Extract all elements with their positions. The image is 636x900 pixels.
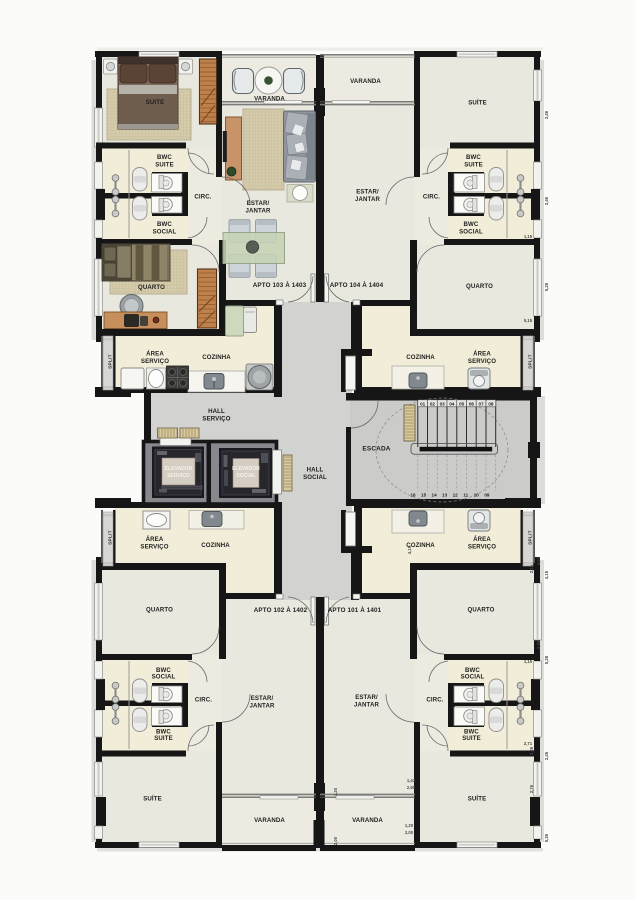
svg-text:ÁREA: ÁREA [146,536,164,543]
svg-text:COZINHA: COZINHA [201,542,230,549]
svg-text:SUÍTE: SUÍTE [468,795,487,803]
svg-text:ÁREA: ÁREA [473,351,491,358]
svg-text:SOCIAL: SOCIAL [303,474,327,481]
svg-text:1,15: 1,15 [524,234,533,239]
svg-text:2,45: 2,45 [529,746,534,755]
svg-text:COZINHA: COZINHA [202,354,231,361]
svg-text:QUARTO: QUARTO [466,283,493,290]
svg-text:SUITE: SUITE [462,735,481,742]
svg-text:2,00: 2,00 [333,836,338,845]
svg-text:2,46: 2,46 [544,110,549,119]
svg-text:ESTAR/: ESTAR/ [247,200,270,207]
svg-text:SUITE: SUITE [464,162,483,169]
svg-text:VARANDA: VARANDA [352,817,383,824]
svg-text:SERVIÇO: SERVIÇO [202,416,230,423]
svg-text:BWC: BWC [464,221,479,228]
svg-text:11: 11 [463,493,468,498]
svg-text:SPLIT: SPLIT [527,354,532,369]
svg-text:ESTAR/: ESTAR/ [356,189,379,196]
svg-text:ELEVADOR: ELEVADOR [232,466,260,472]
svg-text:SERVIÇO: SERVIÇO [167,473,190,479]
svg-text:05: 05 [459,401,465,406]
svg-text:BWC: BWC [157,154,172,161]
svg-text:13: 13 [442,493,448,498]
svg-text:SUÍTE: SUÍTE [143,795,162,803]
svg-text:CIRC.: CIRC. [423,194,440,201]
svg-text:2,00: 2,00 [405,830,414,835]
svg-text:SOCIAL: SOCIAL [461,674,485,681]
svg-text:CIRC.: CIRC. [195,697,212,704]
svg-text:1,43: 1,43 [407,778,416,783]
svg-text:CIRC.: CIRC. [194,194,211,201]
svg-text:ESCADA: ESCADA [362,446,390,453]
svg-text:CIRC.: CIRC. [426,697,443,704]
svg-text:APTO 101 À 1401: APTO 101 À 1401 [328,605,382,614]
svg-text:BWC: BWC [157,221,172,228]
svg-text:QUARTO: QUARTO [467,607,494,614]
svg-text:SOCIAL: SOCIAL [153,229,177,236]
svg-text:SUITE: SUITE [154,735,173,742]
svg-text:2,90: 2,90 [407,785,416,790]
svg-text:04: 04 [449,401,455,406]
svg-text:APTO 103 À 1403: APTO 103 À 1403 [253,280,307,289]
svg-text:QUARTO: QUARTO [146,607,173,614]
svg-text:5,28: 5,28 [544,282,549,291]
svg-text:12: 12 [453,493,459,498]
svg-text:SERVIÇO: SERVIÇO [141,358,169,365]
svg-text:5,28: 5,28 [544,655,549,664]
svg-text:2,71: 2,71 [524,741,533,746]
svg-text:03: 03 [440,401,446,406]
svg-text:08: 08 [488,401,494,406]
svg-text:07: 07 [479,401,485,406]
svg-text:10: 10 [474,493,480,498]
svg-text:2,45: 2,45 [544,751,549,760]
svg-text:SOCIAL: SOCIAL [459,229,483,236]
svg-text:15: 15 [421,493,427,498]
svg-text:VARANDA: VARANDA [254,817,285,824]
svg-text:JANTAR: JANTAR [250,703,275,710]
svg-text:VARANDA: VARANDA [254,96,285,103]
svg-text:SOCIAL: SOCIAL [152,674,176,681]
svg-text:5,15: 5,15 [524,318,533,323]
svg-text:HALL: HALL [208,408,225,415]
svg-text:2,76: 2,76 [529,784,534,793]
svg-text:APTO 102 À 1402: APTO 102 À 1402 [254,605,308,614]
svg-text:ESTAR/: ESTAR/ [355,694,378,701]
svg-text:ÁREA: ÁREA [146,351,164,358]
svg-text:BWC: BWC [466,154,481,161]
svg-text:SPLIT: SPLIT [527,530,532,545]
svg-text:14: 14 [432,493,438,498]
svg-text:SOCIAL: SOCIAL [236,473,255,479]
svg-text:JANTAR: JANTAR [354,702,379,709]
svg-text:5,26: 5,26 [544,833,549,842]
svg-text:1,20: 1,20 [333,787,338,796]
svg-text:06: 06 [469,401,475,406]
svg-text:09: 09 [484,493,490,498]
svg-text:1,20: 1,20 [405,823,414,828]
svg-text:3,26: 3,26 [536,640,541,649]
svg-text:COZINHA: COZINHA [406,354,435,361]
svg-text:SUITE: SUITE [155,162,174,169]
svg-text:APTO 104 À 1404: APTO 104 À 1404 [330,280,384,289]
svg-text:01: 01 [420,401,426,406]
svg-text:ESTAR/: ESTAR/ [251,695,274,702]
svg-text:4,03: 4,03 [536,556,541,565]
svg-text:ÁREA: ÁREA [473,536,491,543]
svg-text:16: 16 [410,493,416,498]
svg-text:ELEVADOR: ELEVADOR [165,466,193,472]
svg-text:SUITE: SUITE [146,99,165,106]
svg-text:SUÍTE: SUÍTE [468,99,487,107]
svg-text:02: 02 [430,401,436,406]
svg-text:SERVIÇO: SERVIÇO [468,544,496,551]
svg-text:SERVIÇO: SERVIÇO [140,544,168,551]
svg-text:HALL: HALL [307,467,324,474]
svg-text:4,15: 4,15 [407,545,412,554]
svg-text:2,46: 2,46 [544,196,549,205]
svg-text:SPLIT: SPLIT [107,354,112,369]
svg-text:SPLIT: SPLIT [107,530,112,545]
svg-text:QUARTO: QUARTO [138,284,165,291]
svg-text:4,15: 4,15 [544,570,549,579]
svg-text:2,15: 2,15 [529,564,534,573]
svg-text:VARANDA: VARANDA [350,78,381,85]
svg-text:SERVIÇO: SERVIÇO [468,358,496,365]
svg-text:JANTAR: JANTAR [355,196,380,203]
svg-text:1,15: 1,15 [524,659,533,664]
svg-text:JANTAR: JANTAR [246,208,271,215]
